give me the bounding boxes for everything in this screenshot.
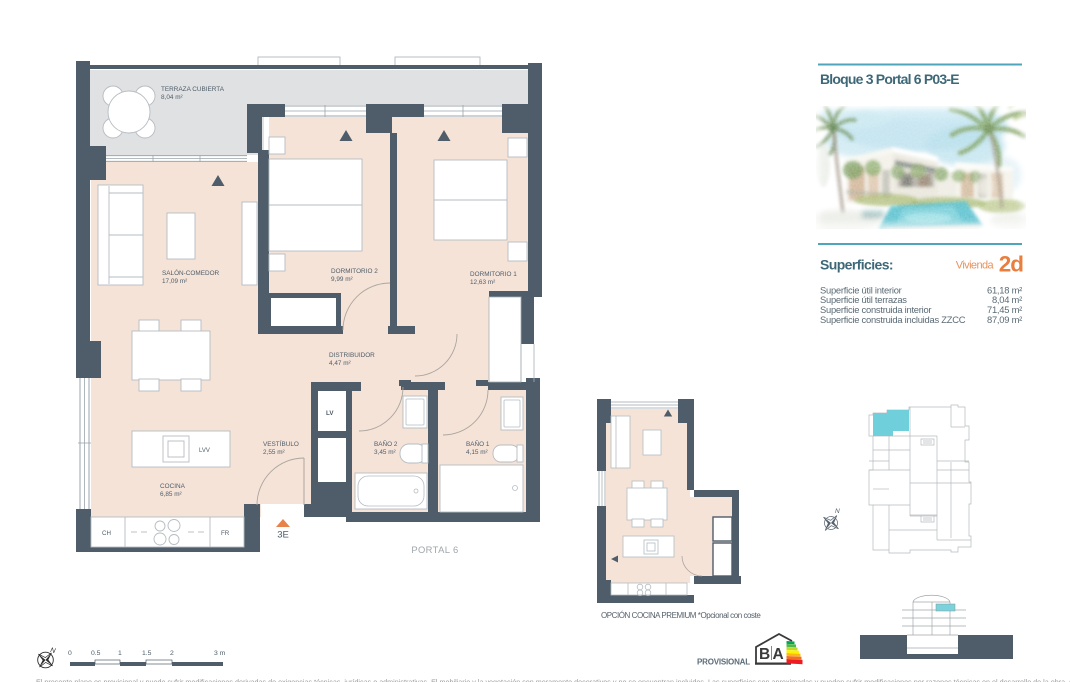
svg-text:8,04 m²: 8,04 m²: [161, 94, 183, 101]
svg-text:FR: FR: [221, 530, 230, 537]
svg-text:9,99 m²: 9,99 m²: [331, 276, 353, 283]
svg-text:2,55 m²: 2,55 m²: [263, 449, 285, 456]
svg-text:VESTÍBULO: VESTÍBULO: [263, 439, 299, 448]
svg-text:LV: LV: [326, 410, 334, 417]
svg-text:OPCIÓN COCINA PREMIUM *Opciona: OPCIÓN COCINA PREMIUM *Opcional con cost…: [601, 611, 761, 620]
svg-text:4,47 m²: 4,47 m²: [329, 360, 351, 367]
svg-text:1: 1: [118, 650, 122, 657]
svg-text:PROVISIONAL: PROVISIONAL: [697, 658, 750, 667]
svg-text:A: A: [773, 646, 784, 663]
svg-text:2: 2: [170, 650, 174, 657]
svg-text:DORMITORIO 1: DORMITORIO 1: [470, 271, 517, 278]
svg-text:N: N: [835, 508, 840, 515]
svg-text:2d: 2d: [999, 252, 1024, 277]
svg-text:3,45 m²: 3,45 m²: [374, 449, 396, 456]
svg-text:LVV: LVV: [199, 448, 210, 454]
svg-text:0.5: 0.5: [91, 650, 101, 657]
svg-text:B: B: [759, 646, 770, 663]
svg-text:0: 0: [68, 650, 72, 657]
svg-text:17,09 m²: 17,09 m²: [162, 278, 187, 285]
svg-text:CH: CH: [102, 530, 111, 537]
svg-text:PORTAL 6: PORTAL 6: [411, 544, 458, 555]
svg-text:SALÓN-COMEDOR: SALÓN-COMEDOR: [162, 268, 220, 277]
svg-text:COCINA: COCINA: [160, 483, 186, 490]
svg-text:El presente plano es provision: El presente plano es provisional y puede…: [36, 678, 1070, 682]
svg-text:TERRAZA CUBIERTA: TERRAZA CUBIERTA: [161, 86, 225, 93]
svg-text:4,15 m²: 4,15 m²: [466, 449, 488, 456]
svg-text:Bloque 3 Portal 6 P03-E: Bloque 3 Portal 6 P03-E: [820, 71, 959, 87]
svg-text:BAÑO 1: BAÑO 1: [466, 439, 490, 448]
svg-text:Vivienda: Vivienda: [956, 260, 995, 272]
svg-text:N: N: [50, 647, 57, 655]
svg-text:1.5: 1.5: [142, 650, 152, 657]
svg-text:6,85 m²: 6,85 m²: [160, 491, 182, 498]
svg-text:DISTRIBUIDOR: DISTRIBUIDOR: [329, 352, 375, 359]
svg-text:Superficies:: Superficies:: [820, 257, 893, 273]
svg-text:3 m: 3 m: [214, 650, 226, 657]
svg-text:12,63 m²: 12,63 m²: [470, 279, 495, 286]
svg-text:BAÑO 2: BAÑO 2: [374, 439, 398, 448]
svg-text:DORMITORIO 2: DORMITORIO 2: [331, 268, 378, 275]
svg-text:Superficie construida incluida: Superficie construida incluidas ZZCC: [820, 314, 966, 325]
svg-text:3E: 3E: [277, 530, 289, 541]
svg-text:87,09 m²: 87,09 m²: [987, 314, 1022, 325]
